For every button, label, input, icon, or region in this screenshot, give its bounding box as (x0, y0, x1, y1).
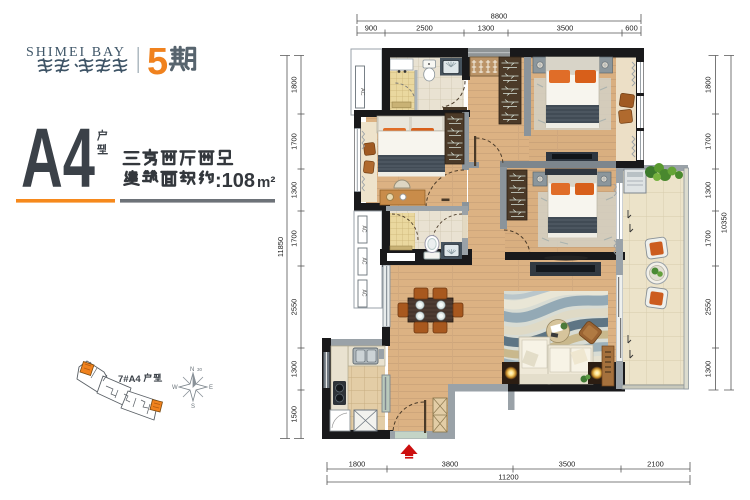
svg-text:1300: 1300 (704, 182, 713, 199)
svg-text:1700: 1700 (704, 230, 713, 247)
svg-text:30: 30 (197, 367, 203, 372)
svg-text:5: 5 (147, 41, 168, 83)
svg-text:2500: 2500 (416, 24, 433, 33)
svg-text:2550: 2550 (704, 299, 713, 316)
svg-text:1500: 1500 (290, 406, 299, 423)
svg-text:AC: AC (359, 88, 365, 96)
svg-text:1800: 1800 (290, 76, 299, 93)
svg-text:W: W (172, 385, 178, 391)
svg-text:11200: 11200 (498, 473, 518, 482)
svg-text:AC: AC (361, 226, 367, 233)
svg-text:AC: AC (361, 258, 367, 265)
svg-text:3500: 3500 (559, 460, 576, 469)
svg-text:1700: 1700 (290, 133, 299, 150)
svg-text:1300: 1300 (290, 361, 299, 378)
svg-text:8800: 8800 (491, 12, 508, 21)
svg-text:S: S (191, 404, 195, 410)
svg-text:1700: 1700 (704, 133, 713, 150)
svg-text:10350: 10350 (720, 212, 729, 233)
svg-text:7#A4: 7#A4 (118, 374, 141, 385)
svg-text:1800: 1800 (704, 76, 713, 93)
svg-text:A4: A4 (21, 111, 95, 205)
svg-text:1300: 1300 (478, 24, 495, 33)
svg-text::108: :108 (215, 170, 255, 192)
svg-text:11850: 11850 (276, 237, 285, 257)
svg-text:AC: AC (361, 290, 367, 297)
svg-text:N: N (190, 367, 194, 373)
svg-text:600: 600 (625, 24, 638, 33)
svg-text:E: E (209, 385, 213, 391)
svg-text:2550: 2550 (290, 299, 299, 316)
svg-text:m²: m² (257, 174, 275, 191)
svg-text:1300: 1300 (290, 182, 299, 199)
svg-text:SHIMEI BAY: SHIMEI BAY (26, 45, 126, 60)
svg-text:1300: 1300 (704, 361, 713, 378)
svg-text:900: 900 (365, 24, 378, 33)
svg-text:3800: 3800 (442, 460, 459, 469)
svg-text:3500: 3500 (557, 24, 574, 33)
svg-text:2100: 2100 (647, 460, 664, 469)
svg-text:1800: 1800 (349, 460, 366, 469)
svg-text:1700: 1700 (290, 230, 299, 247)
